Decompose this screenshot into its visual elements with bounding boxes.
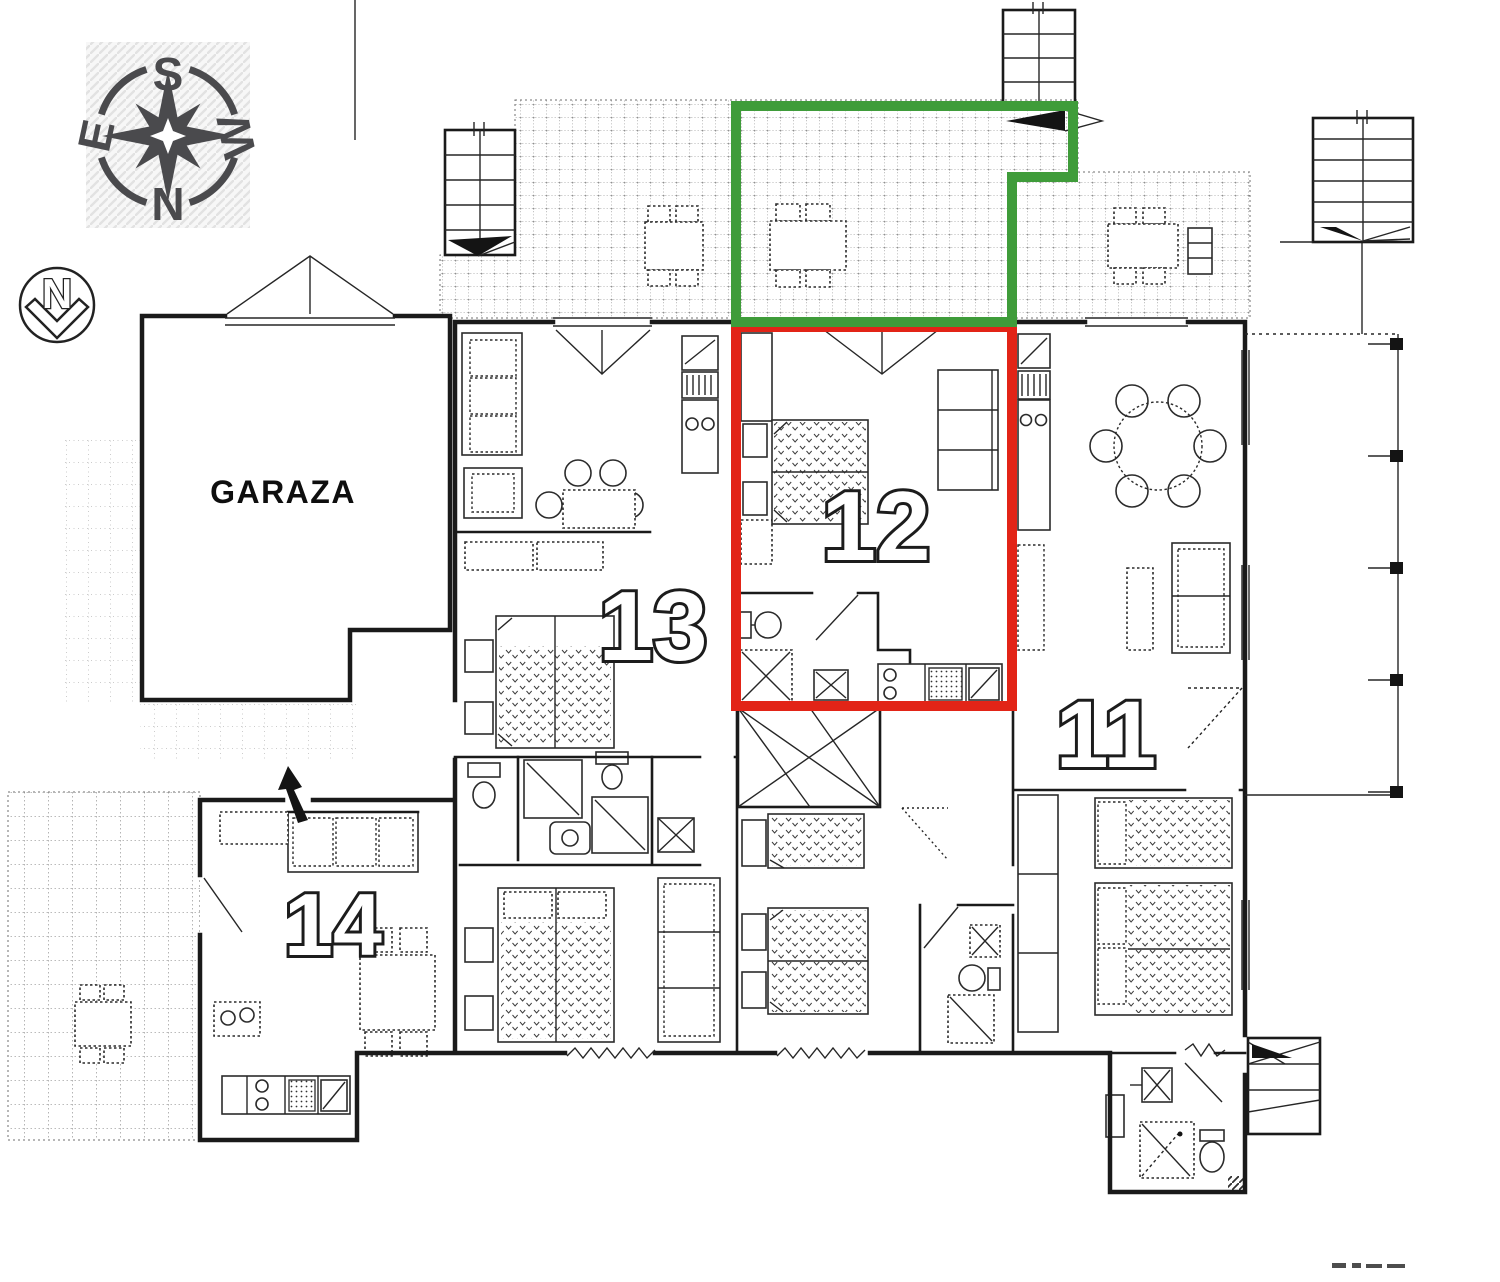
- kitchen-unit: [682, 336, 718, 473]
- toilet-symbol: [739, 612, 781, 638]
- shower-symbol: [592, 797, 648, 853]
- staircase-top-right: [1280, 110, 1413, 242]
- stair-direction-arrow: [1252, 1044, 1292, 1058]
- kitchen-unit: [878, 664, 1002, 704]
- floor-plan-page: GARAZA 13: [0, 0, 1500, 1282]
- shower-symbol: [740, 650, 792, 702]
- kitchen-unit: [222, 1076, 350, 1114]
- double-bed: [1095, 883, 1232, 1015]
- floor-plan-drawing: GARAZA 13: [0, 0, 1500, 1282]
- apartment-14-label: 14: [284, 875, 382, 974]
- sink-symbol: [550, 822, 590, 854]
- wardrobe: [1018, 795, 1058, 1032]
- single-bed: [1095, 798, 1232, 868]
- hatched-corner: [1228, 1176, 1245, 1192]
- grill-symbol: [1188, 228, 1212, 274]
- staircase-bottom-right: [1248, 1038, 1320, 1134]
- sofa: [288, 812, 418, 872]
- garage-door-swing: [227, 256, 393, 314]
- apartment-13-label: 13: [598, 571, 707, 681]
- sofa: [1172, 543, 1230, 653]
- coffee-table: [1127, 568, 1153, 650]
- toilet-symbol: [1200, 1130, 1224, 1172]
- compass-south-label: S: [153, 48, 184, 100]
- north-marker-label: N: [42, 270, 72, 317]
- garage-label: GARAZA: [210, 474, 356, 510]
- washing-machine-symbol: [658, 818, 694, 852]
- shelf-unit: [938, 370, 998, 490]
- stair-direction-arrow: [1320, 227, 1363, 241]
- southwest-terrace-tiled: [8, 792, 200, 1140]
- cropped-text-fragment: [1332, 1263, 1405, 1268]
- sideboard: [220, 812, 288, 844]
- staircase-left: [445, 122, 515, 256]
- shower-symbol: [948, 995, 994, 1043]
- apartment-11-label: 11: [1056, 682, 1156, 788]
- east-balcony: [1245, 334, 1403, 798]
- compass-rose: S N E W: [67, 42, 266, 230]
- sofa: [462, 333, 522, 455]
- toilet-symbol: [959, 965, 1000, 991]
- sink-symbol: [814, 670, 848, 700]
- armchair: [464, 468, 522, 518]
- shower-symbol: [1140, 1122, 1194, 1178]
- stair-direction-arrow: [448, 236, 512, 256]
- north-arrow-marker: N: [20, 268, 94, 342]
- burner-table: [214, 1002, 260, 1036]
- bench-seat: [658, 878, 720, 1042]
- shower-symbol: [524, 760, 582, 818]
- single-bed: [742, 814, 864, 868]
- compass-north-label: N: [151, 178, 184, 230]
- apartment-12-label: 12: [821, 471, 930, 581]
